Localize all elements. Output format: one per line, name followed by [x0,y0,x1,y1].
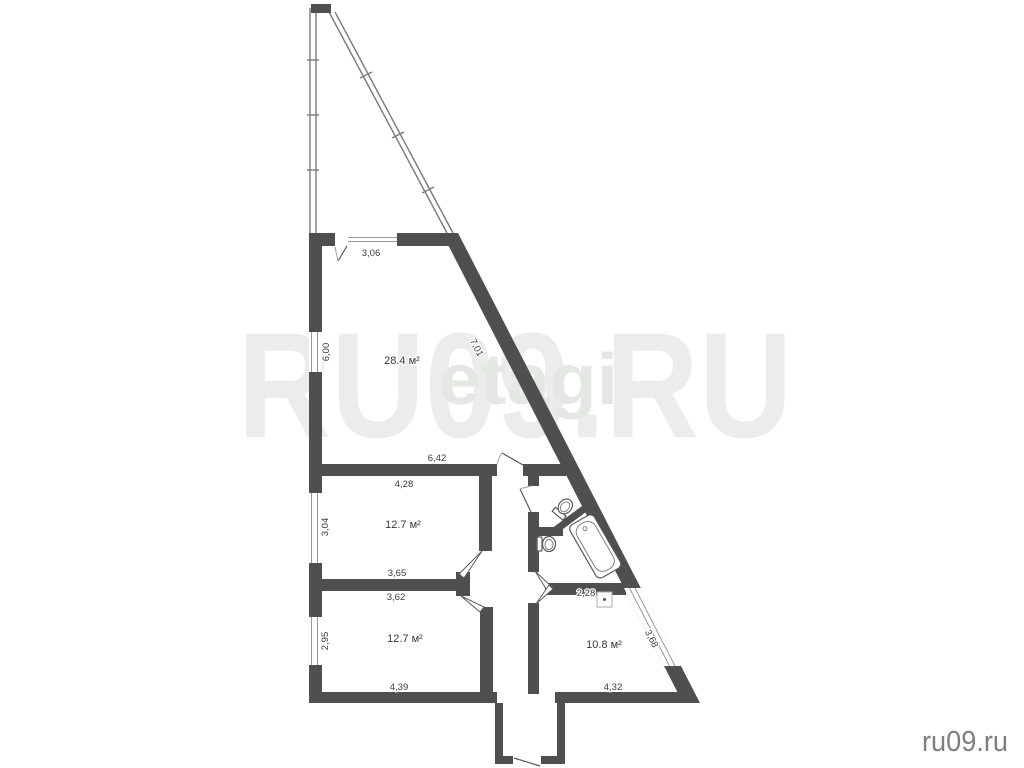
floorplan-image: RU09.RU etagi [0,0,1024,768]
wall-room-right-left [528,603,539,694]
label-hall-top: 6,42 [428,453,447,464]
label-area-bedroom-top: 12.7 м² [385,519,421,531]
label-bedroom-top-left: 3,04 [320,518,331,537]
label-bedroom-bottom-width: 4,39 [390,682,409,693]
wall-bedroom-bottom-right [480,607,493,694]
wall-bedroom-top-right [479,476,492,551]
label-area-living: 28.4 м² [384,355,420,367]
label-room-right-width: 4,32 [604,682,623,693]
window-diagonal [624,588,681,666]
door-bathroom [520,486,531,512]
label-bedroom-top-width: 4,28 [395,479,414,490]
label-bedroom-bottom-left: 2,95 [320,632,331,651]
label-balcony-window: 3,06 [362,248,381,259]
wall-bottom-left [309,692,497,703]
label-area-room-right: 10.8 м² [586,639,622,651]
label-bath-width: 2,28 [577,588,596,599]
label-bedroom-top-bottom: 3,65 [388,568,407,579]
watermark-site: ru09.ru [922,726,1008,758]
floorplan-svg: RU09.RU etagi [0,0,1024,768]
toilet [537,537,556,552]
label-bedroom-bottom-top: 3,62 [387,592,406,603]
entry-vestibule [495,703,565,766]
wall-bottom-right [555,692,684,703]
stove-symbol [597,592,612,607]
door-bedroom-top [459,551,482,578]
label-area-bedroom-bottom: 12.7 м² [387,633,423,645]
wall-bath-left-upper [528,468,539,486]
entry-door [514,758,540,766]
wall-between-bedrooms [322,579,461,591]
label-living-left: 6,00 [321,343,332,362]
door-bedroom-bottom [461,596,484,612]
balcony-glazing [307,4,453,233]
wall-hall-top-left [322,464,497,476]
balcony-end-wall [311,4,331,13]
